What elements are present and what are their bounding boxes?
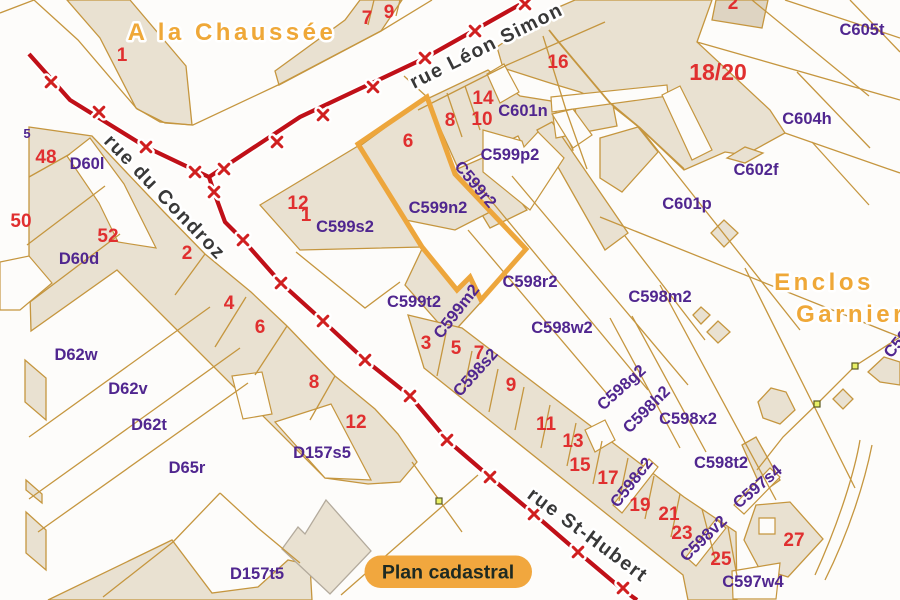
svg-text:6: 6 — [403, 131, 414, 152]
svg-text:D65r: D65r — [169, 459, 206, 477]
svg-text:C598w2: C598w2 — [531, 319, 592, 337]
svg-text:C599p2: C599p2 — [481, 146, 540, 164]
svg-text:7: 7 — [362, 8, 373, 29]
svg-text:C599t2: C599t2 — [387, 293, 441, 311]
svg-text:D60d: D60d — [59, 250, 99, 268]
svg-text:9: 9 — [384, 2, 395, 23]
svg-text:2: 2 — [182, 243, 193, 264]
svg-text:3: 3 — [421, 333, 432, 354]
svg-text:C601n: C601n — [498, 102, 548, 120]
svg-text:19: 19 — [629, 495, 650, 516]
svg-text:D157t5: D157t5 — [230, 565, 284, 583]
svg-text:11: 11 — [536, 414, 557, 435]
svg-text:27: 27 — [783, 530, 804, 551]
svg-text:17: 17 — [597, 468, 618, 489]
svg-text:48: 48 — [35, 147, 56, 168]
svg-text:C604h: C604h — [782, 110, 832, 128]
svg-text:5: 5 — [23, 126, 30, 141]
svg-text:14: 14 — [472, 88, 494, 109]
svg-text:A la Chaussée: A la Chaussée — [128, 19, 337, 46]
svg-text:D60l: D60l — [70, 155, 105, 173]
svg-text:C597w4: C597w4 — [722, 573, 784, 591]
svg-text:6: 6 — [255, 317, 266, 338]
svg-text:8: 8 — [309, 372, 320, 393]
svg-text:25: 25 — [710, 549, 732, 570]
svg-text:13: 13 — [562, 431, 583, 452]
svg-text:2: 2 — [728, 0, 739, 14]
svg-text:Plan cadastral: Plan cadastral — [382, 562, 514, 584]
svg-text:16: 16 — [547, 52, 568, 73]
svg-text:C605t: C605t — [840, 21, 885, 39]
svg-text:C598t2: C598t2 — [694, 454, 748, 472]
svg-text:5: 5 — [451, 338, 462, 359]
svg-text:D157s5: D157s5 — [293, 444, 351, 462]
svg-text:18/20: 18/20 — [689, 59, 747, 85]
svg-text:Garnier: Garnier — [796, 301, 900, 328]
svg-text:15: 15 — [569, 455, 591, 476]
svg-text:C601p: C601p — [662, 195, 712, 213]
svg-text:C598r2: C598r2 — [502, 273, 557, 291]
svg-text:8: 8 — [445, 110, 456, 131]
svg-text:D62t: D62t — [131, 416, 167, 434]
svg-text:C598m2: C598m2 — [628, 288, 691, 306]
svg-text:21: 21 — [658, 504, 680, 525]
svg-text:10: 10 — [471, 109, 492, 130]
svg-text:C599s2: C599s2 — [316, 218, 374, 236]
svg-text:C599n2: C599n2 — [409, 199, 468, 217]
svg-text:C598x2: C598x2 — [659, 410, 717, 428]
svg-text:C602f: C602f — [734, 161, 779, 179]
svg-text:50: 50 — [10, 211, 31, 232]
svg-text:12: 12 — [345, 412, 366, 433]
svg-text:D62w: D62w — [54, 346, 97, 364]
svg-text:1: 1 — [301, 205, 312, 226]
svg-text:52: 52 — [97, 226, 118, 247]
svg-text:9: 9 — [506, 375, 517, 396]
svg-text:Enclos: Enclos — [774, 269, 874, 296]
svg-text:1: 1 — [117, 45, 128, 66]
svg-text:4: 4 — [224, 293, 235, 314]
svg-text:D62v: D62v — [108, 380, 148, 398]
